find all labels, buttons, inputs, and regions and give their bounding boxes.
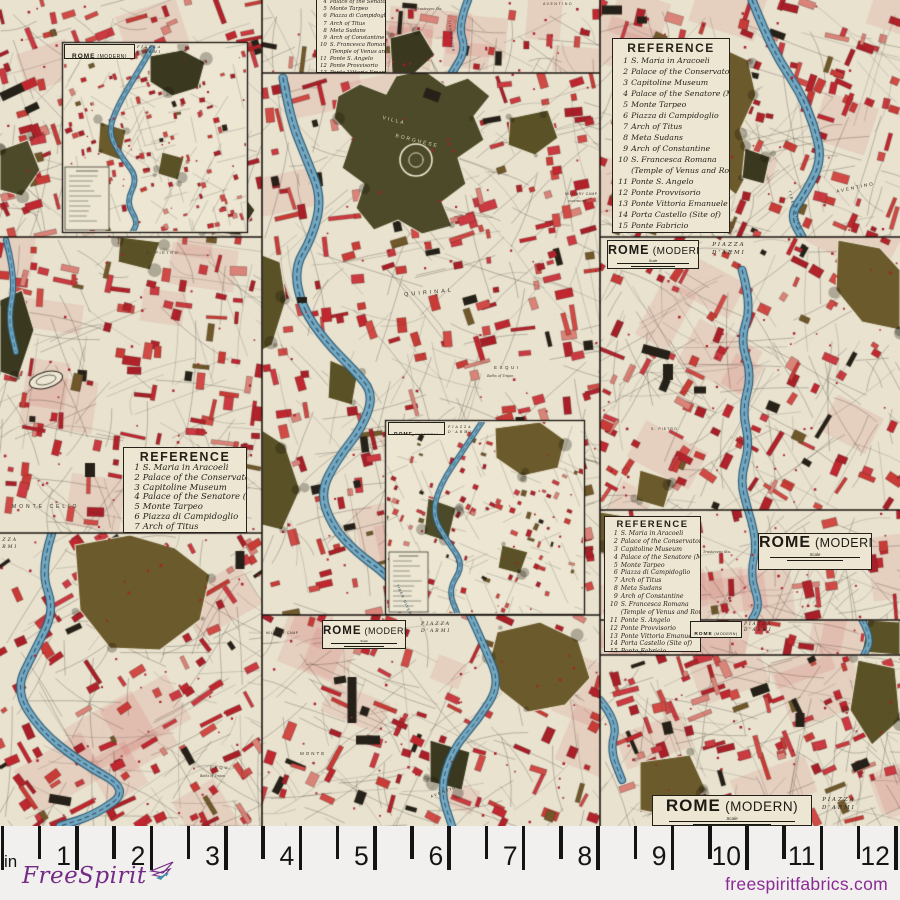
reference-legend-item: 5Monte Tarpeo	[608, 562, 697, 570]
piazza-darmi-label: PIAZZAD'ARMI	[744, 621, 773, 634]
reference-item-number: 5	[320, 6, 330, 13]
reference-item-text: Palace of the Conservatori	[621, 538, 701, 546]
map-place-label: Trastevere Sta.	[416, 8, 442, 11]
reference-item-number: 11	[616, 176, 631, 187]
piazza-line1: PIAZZA	[712, 241, 746, 249]
reference-item-number: 3	[608, 546, 621, 554]
reference-item-number: 13	[608, 633, 621, 641]
fabric-pattern	[0, 0, 900, 826]
reference-legend-item: 7Arch of Titus	[616, 121, 726, 132]
piazza-darmi-label: PIAZZAD'ARMI	[712, 241, 746, 258]
reference-item-number: 10	[320, 42, 330, 49]
reference-item-text: Ponte Vittoria Emanuele	[631, 198, 728, 209]
reference-item-text: Ponte S. Angelo	[621, 617, 670, 625]
map-place-label: S. PIETRO	[146, 251, 179, 255]
rome-title-main: ROME	[759, 534, 811, 551]
reference-item-number: 11	[608, 617, 621, 625]
reference-legend-content: REFERENCE1S. Maria in Aracoeli2Palace of…	[613, 39, 729, 231]
reference-legend-item: 6Piazza di Campidoglio	[320, 13, 382, 20]
reference-item-number	[320, 49, 330, 56]
reference-legend-item: 4Palace of the Senatore (Mod'fd)	[608, 554, 697, 562]
piazza-line2: D'ARMI	[137, 50, 162, 55]
rome-title-main: ROME	[323, 625, 362, 637]
ruler-tick-inch	[522, 826, 526, 870]
ruler-unit-label: in	[4, 853, 17, 870]
reference-legend-content: REFERENCE1S. Maria in Aracoeli2Palace of…	[124, 448, 246, 533]
reference-legend-item: 10S. Francesca Romana	[608, 601, 697, 609]
ruler-number: 12	[850, 843, 890, 870]
reference-item-number: 8	[616, 132, 631, 143]
piazza-darmi-label: PIAZZAD'ARMI	[0, 538, 18, 552]
reference-legend-item: 11Ponte S. Angelo	[608, 617, 697, 625]
reference-legend-item: 4Palace of the Senatore (Mod'fd)	[616, 88, 726, 99]
reference-item-number: 12	[616, 187, 631, 198]
map-place-label: (CASTRO PR.)	[568, 200, 588, 203]
reference-item-number: 4	[608, 554, 621, 562]
rome-modern-title-box: ROME (MODERN)Scale	[322, 620, 406, 649]
reference-item-text: Piazza di Campidoglio	[631, 110, 719, 121]
ruler-tick-inch	[299, 826, 303, 870]
reference-legend-item: 14Porta Castello (Site of)	[616, 209, 726, 220]
reference-item-number: 15	[616, 220, 631, 231]
reference-item-text: Capitoline Museum	[631, 77, 708, 88]
reference-legend-item: 13Ponte Vittoria Emanuele	[320, 70, 382, 73]
reference-legend-item: 9Arch of Constantine	[616, 143, 726, 154]
reference-item-number: 8	[320, 28, 330, 35]
rome-modern-title: ROME (MODERN)	[759, 535, 871, 552]
map-place-label: ESQUI	[494, 366, 521, 371]
ruler-number: 3	[180, 843, 220, 870]
reference-item-text: Ponte S. Angelo	[631, 176, 693, 187]
reference-item-number	[608, 609, 621, 617]
reference-legend-item: 7Arch of Titus	[320, 21, 382, 28]
inch-ruler: 123456789101112 in FreeSpirit freespirit…	[0, 826, 900, 900]
reference-item-text: Arch of Titus	[621, 577, 662, 585]
butterfly-icon	[149, 860, 176, 886]
reference-legend-title: REFERENCE	[127, 450, 243, 464]
reference-item-number: 8	[608, 585, 621, 593]
reference-item-number	[616, 165, 631, 176]
piazza-line2: D'ARMI	[822, 804, 856, 812]
reference-legend-item: 11Ponte S. Angelo	[616, 176, 726, 187]
reference-item-text: Ponte Vittoria Emanuele	[621, 633, 698, 641]
rome-modern-title-box: ROME (MODERN)Scale	[607, 240, 699, 269]
reference-legend-item: (Temple of Venus and Rome)	[616, 165, 726, 176]
reference-legend-title: REFERENCE	[608, 519, 697, 530]
reference-legend: REFERENCE1S. Maria in Aracoeli2Palace of…	[123, 447, 247, 533]
reference-item-text: Piazza di Campidoglio	[621, 569, 690, 577]
ruler-number: 9	[627, 843, 667, 870]
reference-legend-item: (Temple of Venus and Rome)	[320, 49, 382, 56]
reference-legend-item: 6Piazza di Campidoglio	[616, 110, 726, 121]
ruler-tick-inch	[373, 826, 377, 870]
rome-title-main: ROME	[694, 632, 712, 637]
ruler-number: 11	[775, 843, 815, 870]
reference-item-number: 6	[616, 110, 631, 121]
rome-title-paren: (MODERN)	[413, 432, 439, 435]
rome-modern-title-box: ROME (MODERN)Scale	[758, 533, 872, 570]
piazza-darmi-label: PIAZZAD'ARMI	[448, 425, 473, 435]
rome-modern-title-box: ROME (MODERN)Scale	[388, 422, 445, 435]
reference-legend-item: 9Arch of Constantine	[320, 35, 382, 42]
reference-item-number: 15	[608, 648, 621, 652]
ruler-tick-inch	[745, 826, 749, 870]
reference-legend-item: 1S. Maria in Aracoeli	[608, 530, 697, 538]
fabric-swatch-image: REFERENCE1S. Maria in Aracoeli2Palace of…	[0, 0, 900, 900]
ruler-number: 8	[552, 843, 592, 870]
scale-bar-line	[344, 646, 385, 647]
rome-modern-title: ROME (MODERN)	[389, 424, 444, 435]
map-place-label: Baths of Trajan	[200, 775, 225, 778]
reference-item-text: Meta Sudans	[330, 28, 366, 35]
reference-item-text: Ponte Fabricio	[621, 648, 666, 652]
piazza-line2: D'ARMI	[744, 627, 773, 633]
rome-title-main: ROME	[666, 796, 721, 815]
reference-legend-item: 15Ponte Fabricio	[616, 220, 726, 231]
reference-item-text: Arch of Constantine	[330, 35, 385, 42]
piazza-line1: PIAZZA	[421, 622, 451, 629]
rome-title-paren: (MODERN)	[811, 536, 872, 550]
reference-legend-item: 12Ponte Provvisorio	[616, 187, 726, 198]
reference-item-text: Palace of the Conservatori	[631, 66, 730, 77]
reference-legend-item: 13Ponte Vittoria Emanuele	[608, 633, 697, 641]
reference-item-text: Porta Castello (Site of)	[621, 640, 692, 648]
reference-item-text: Meta Sudans	[621, 585, 662, 593]
rome-modern-title: ROME (MODERN)	[653, 797, 811, 816]
reference-legend-item: (Temple of Venus and Rome)	[608, 609, 697, 617]
piazza-darmi-label: PIAZZAD'ARMI	[137, 45, 162, 55]
ruler-tick-inch	[671, 826, 675, 870]
map-place-label: Trastevere Sta.	[703, 551, 731, 555]
reference-legend-item: 9Arch of Constantine	[608, 593, 697, 601]
piazza-darmi-label: PIAZZAD'ARMI	[421, 622, 451, 636]
reference-legend-content: REFERENCE1S. Maria in Aracoeli2Palace of…	[605, 517, 700, 652]
rome-modern-title-box: ROME (MODERN)Scale	[64, 44, 135, 59]
reference-legend-item: 14Porta Castello (Site of)	[608, 640, 697, 648]
rome-title-paren: (MODERN)	[713, 632, 738, 636]
reference-item-number: 9	[608, 593, 621, 601]
reference-item-text: Arch of Constantine	[621, 593, 684, 601]
ruler-tick-inch	[447, 826, 451, 870]
reference-item-text: (Temple of Venus and Rome)	[330, 49, 386, 56]
reference-legend-item: 5Monte Tarpeo	[616, 99, 726, 110]
piazza-line2: D'ARMI	[421, 629, 451, 636]
scale-bar: Scale	[331, 640, 397, 647]
reference-item-number: 1	[608, 530, 621, 538]
reference-legend-item: 8Meta Sudans	[608, 585, 697, 593]
reference-legend-item: 3Capitoline Museum	[608, 546, 697, 554]
reference-item-text: Monte Tarpeo	[621, 562, 665, 570]
map-place-label: S. PIETRO	[651, 428, 678, 432]
reference-item-number: 9	[320, 35, 330, 42]
rome-title-main: ROME	[608, 243, 650, 257]
scale-bar: Scale	[770, 553, 860, 561]
piazza-line1: PIAZZA	[0, 538, 18, 545]
reference-item-text: Piazza di Campidoglio	[330, 13, 386, 20]
reference-legend-item: 3Capitoline Museum	[616, 77, 726, 88]
piazza-line2: D'ARMI	[712, 249, 746, 257]
reference-item-number: 3	[616, 77, 631, 88]
reference-item-text: Ponte Fabricio	[631, 220, 688, 231]
reference-item-text: Monte Tarpeo	[631, 99, 686, 110]
reference-item-number: 7	[608, 577, 621, 585]
scale-bar: Scale	[669, 817, 795, 826]
freespirit-logo: FreeSpirit	[22, 863, 176, 892]
map-place-label: Baths of Trajan	[487, 375, 513, 378]
ruler-number: 10	[701, 843, 741, 870]
ruler-tick-inch	[224, 826, 228, 870]
reference-item-text: Ponte Provvisorio	[621, 625, 676, 633]
ruler-tick-inch	[596, 826, 600, 870]
ruler-number: 7	[478, 843, 518, 870]
reference-item-text: Ponte S. Angelo	[330, 56, 373, 63]
reference-item-text: S. Maria in Aracoeli	[621, 530, 683, 538]
reference-item-number: 7	[616, 121, 631, 132]
reference-item-text: Porta Castello (Site of)	[631, 209, 721, 220]
reference-legend-item: 10S. Francesca Romana	[320, 42, 382, 49]
ruler-tick-inch	[820, 826, 824, 870]
reference-item-text: Ponte Provvisorio	[330, 63, 378, 70]
ruler-number: 6	[403, 843, 443, 870]
map-place-label: MILITARY CAMP	[266, 632, 299, 635]
reference-legend-item: 7Arch of Titus	[608, 577, 697, 585]
reference-item-text: Monte Tarpeo	[330, 6, 368, 13]
scale-bar: Scale	[617, 260, 689, 267]
reference-legend-item: 12Ponte Provvisorio	[608, 625, 697, 633]
reference-item-number: 5	[608, 562, 621, 570]
reference-item-text: (Temple of Venus and Rome)	[631, 165, 730, 176]
rome-modern-title-box: ROME (MODERN)Scale	[652, 795, 812, 826]
reference-item-text: Meta Sudans	[631, 132, 683, 143]
reference-item-text: Ponte Vittoria Emanuele	[330, 70, 386, 73]
rome-modern-title-box: ROME (MODERN)Scale	[690, 621, 742, 638]
reference-item-number: 5	[616, 99, 631, 110]
reference-item-number: 14	[608, 640, 621, 648]
reference-legend-content: REFERENCE1S. Maria in Aracoeli2Palace of…	[317, 0, 385, 73]
reference-item-text: Palace of the Senatore (Mod'fd)	[621, 554, 701, 562]
map-place-label: ESQU I	[210, 766, 236, 770]
reference-legend-item: 13Ponte Vittoria Emanuele	[616, 198, 726, 209]
scale-bar-line	[787, 560, 843, 561]
reference-legend-item: 10S. Francesca Romana	[616, 154, 726, 165]
reference-item-number: 10	[608, 601, 621, 609]
rome-title-paren: (MODERN)	[96, 54, 127, 59]
rome-title-paren: (MODERN)	[362, 626, 407, 636]
piazza-line2: D'ARMI	[448, 430, 473, 435]
map-place-label: MONTE CELIO	[12, 505, 79, 510]
reference-item-number: 14	[616, 209, 631, 220]
rome-title-main: ROME	[394, 432, 413, 435]
reference-item-text: Palace of the Senatore (Mod'fd)	[631, 88, 730, 99]
website-url: freespiritfabrics.com	[725, 874, 888, 895]
reference-legend-item: 1S. Maria in Aracoeli	[616, 55, 726, 66]
piazza-line1: PIAZZA	[822, 796, 856, 804]
reference-item-text: (Temple of Venus and Rome)	[621, 609, 701, 617]
reference-item-number: 10	[616, 154, 631, 165]
reference-item-text: S. Francesca Romana	[631, 154, 717, 165]
reference-legend-item: 5Monte Tarpeo	[320, 6, 382, 13]
rome-modern-title: ROME (MODERN)	[608, 242, 698, 259]
freespirit-logo-text: FreeSpirit	[22, 863, 147, 889]
rome-title-paren: (MODERN)	[721, 799, 798, 814]
scale-bar-line	[631, 266, 676, 267]
reference-item-text: S. Francesca Romana	[621, 601, 689, 609]
map-place-label: MONTE	[300, 752, 326, 757]
rome-title-paren: (MODERN)	[650, 246, 700, 257]
reference-item-text: S. Francesca Romana	[330, 42, 386, 49]
reference-item-number: 2	[616, 66, 631, 77]
reference-item-number: 2	[608, 538, 621, 546]
reference-item-number: 12	[608, 625, 621, 633]
reference-legend-item: 2Palace of the Conservatori	[616, 66, 726, 77]
piazza-line2: D'ARMI	[0, 545, 18, 552]
reference-item-text: Arch of Titus	[330, 21, 365, 28]
reference-legend-title: REFERENCE	[616, 41, 726, 55]
piazza-darmi-label: PIAZZAD'ARMI	[822, 796, 856, 813]
reference-item-number: 12	[320, 63, 330, 70]
reference-legend-item: 8Meta Sudans	[320, 28, 382, 35]
reference-item-number: 4	[616, 88, 631, 99]
reference-item-number: 1	[616, 55, 631, 66]
reference-legend-item: 8Meta Sudans	[616, 132, 726, 143]
rome-title-main: ROME	[72, 53, 96, 59]
reference-item-number: 13	[616, 198, 631, 209]
rome-modern-title: ROME (MODERN)	[691, 623, 741, 638]
reference-item-number: 9	[616, 143, 631, 154]
reference-legend: REFERENCE1S. Maria in Aracoeli2Palace of…	[316, 0, 386, 73]
reference-item-text: S. Maria in Aracoeli	[631, 55, 710, 66]
ruler-number: 4	[254, 843, 294, 870]
reference-item-number: 6	[320, 13, 330, 20]
map-place-label: MILITARY CAMP	[565, 193, 598, 196]
reference-legend-item: 2Palace of the Conservatori	[608, 538, 697, 546]
reference-legend-item: 6Piazza di Campidoglio	[608, 569, 697, 577]
reference-item-number: 11	[320, 56, 330, 63]
reference-item-number: 13	[320, 70, 330, 73]
reference-item-text: Arch of Titus	[631, 121, 682, 132]
reference-legend: REFERENCE1S. Maria in Aracoeli2Palace of…	[612, 38, 730, 233]
reference-item-text: Capitoline Museum	[621, 546, 682, 554]
reference-item-number: 6	[608, 569, 621, 577]
rome-modern-title: ROME (MODERN)	[323, 622, 405, 639]
map-place-label: AVENTINO	[543, 3, 573, 7]
ruler-tick-inch	[894, 826, 898, 870]
reference-legend-item: 12Ponte Provvisorio	[320, 63, 382, 70]
ruler-number: 5	[329, 843, 369, 870]
reference-legend-item: 11Ponte S. Angelo	[320, 56, 382, 63]
reference-item-number: 7	[320, 21, 330, 28]
rome-modern-title: ROME (MODERN)	[65, 46, 134, 59]
reference-item-text: Ponte Provvisorio	[631, 187, 700, 198]
reference-legend-item: 15Ponte Fabricio	[608, 648, 697, 652]
reference-legend: REFERENCE1S. Maria in Aracoeli2Palace of…	[604, 516, 701, 652]
reference-item-text: Arch of Constantine	[631, 143, 710, 154]
